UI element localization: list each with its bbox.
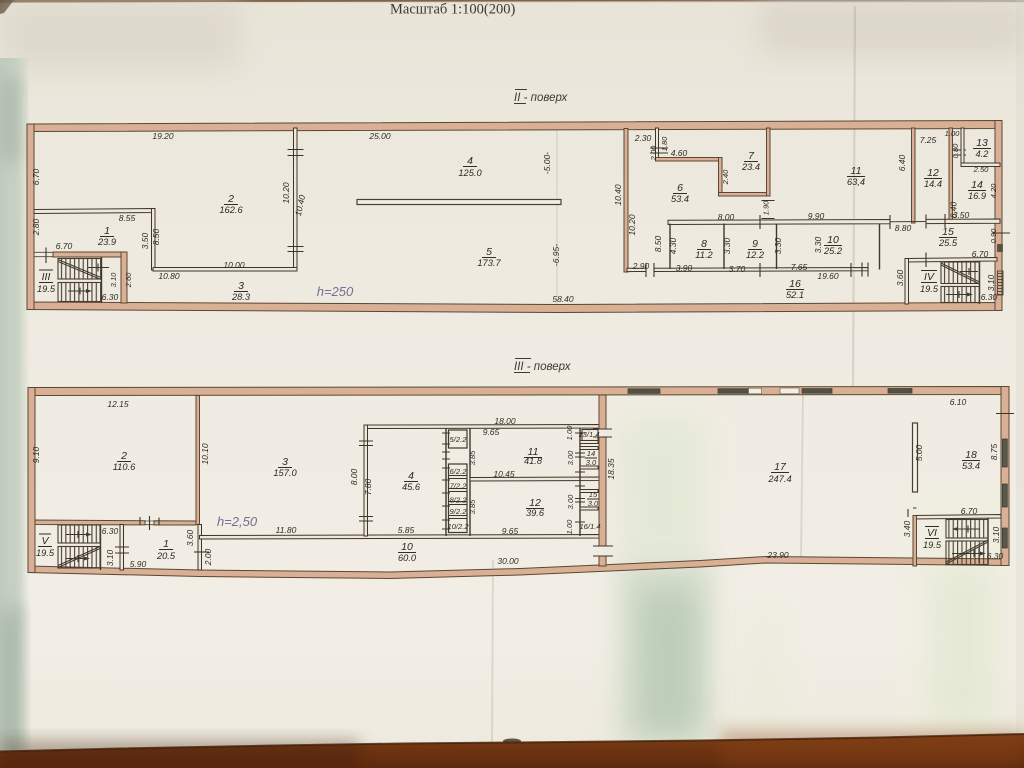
svg-text:2.30: 2.30 — [634, 133, 652, 143]
svg-text:6.70: 6.70 — [56, 241, 73, 251]
svg-text:10.20: 10.20 — [627, 214, 637, 236]
svg-text:8.00: 8.00 — [349, 468, 359, 485]
svg-text:9.65: 9.65 — [483, 427, 500, 437]
svg-text:2: 2 — [120, 450, 127, 462]
svg-text:1.80: 1.80 — [660, 136, 669, 152]
svg-text:3: 3 — [282, 456, 288, 468]
svg-text:23.9: 23.9 — [97, 237, 116, 247]
svg-text:11.2: 11.2 — [695, 250, 713, 260]
svg-text:23.90: 23.90 — [766, 550, 789, 560]
svg-text:1.00: 1.00 — [565, 425, 574, 441]
svg-text:8.00: 8.00 — [718, 212, 735, 222]
svg-text:8/2.2: 8/2.2 — [450, 496, 468, 505]
svg-text:30.00: 30.00 — [497, 556, 519, 566]
svg-text:12: 12 — [927, 167, 939, 179]
svg-text:10: 10 — [827, 234, 839, 246]
svg-text:10.80: 10.80 — [158, 271, 180, 281]
svg-text:6.70: 6.70 — [961, 506, 978, 516]
svg-text:10.45: 10.45 — [493, 469, 515, 479]
svg-text:h=2,50: h=2,50 — [217, 514, 258, 529]
svg-text:-5.00-: -5.00- — [542, 152, 552, 174]
svg-text:16: 16 — [789, 278, 801, 290]
svg-text:19.20: 19.20 — [152, 131, 174, 141]
svg-text:II - поверх: II - поверх — [514, 92, 568, 104]
svg-text:5.90: 5.90 — [130, 559, 147, 569]
svg-text:45.6: 45.6 — [402, 482, 421, 492]
svg-text:39.6: 39.6 — [526, 508, 545, 518]
svg-text:25.00: 25.00 — [368, 131, 391, 141]
svg-text:IV: IV — [924, 271, 935, 283]
svg-text:3.30: 3.30 — [773, 237, 783, 254]
svg-text:13/1.4: 13/1.4 — [578, 430, 599, 439]
svg-text:6/2.2: 6/2.2 — [450, 467, 468, 476]
svg-text:0.90: 0.90 — [989, 228, 998, 244]
svg-text:7.65: 7.65 — [791, 262, 808, 272]
svg-text:28.3: 28.3 — [231, 292, 251, 302]
svg-text:20.5: 20.5 — [156, 551, 176, 561]
svg-text:7.25: 7.25 — [920, 135, 937, 145]
svg-text:58.40: 58.40 — [552, 294, 574, 304]
svg-text:8: 8 — [701, 238, 707, 250]
svg-text:17: 17 — [774, 461, 787, 473]
svg-text:8.50: 8.50 — [653, 235, 663, 252]
svg-text:6.30: 6.30 — [981, 292, 998, 302]
svg-text:2.50: 2.50 — [973, 165, 990, 174]
svg-text:8.75: 8.75 — [989, 443, 999, 460]
svg-text:3.10: 3.10 — [109, 272, 118, 288]
svg-text:3.10: 3.10 — [991, 526, 1001, 543]
svg-text:6.40: 6.40 — [897, 154, 907, 171]
svg-text:53.4: 53.4 — [962, 461, 980, 471]
svg-text:6.30: 6.30 — [102, 292, 119, 302]
svg-text:III: III — [42, 271, 51, 283]
svg-text:10.10: 10.10 — [200, 443, 210, 465]
svg-text:3.85: 3.85 — [468, 499, 477, 515]
svg-text:15: 15 — [942, 226, 954, 238]
svg-text:2.00: 2.00 — [203, 548, 213, 566]
svg-text:11: 11 — [851, 165, 862, 177]
svg-text:3.10: 3.10 — [105, 549, 115, 566]
svg-text:10/2.2: 10/2.2 — [447, 522, 469, 531]
svg-text:8.50: 8.50 — [151, 228, 161, 245]
svg-text:3.70: 3.70 — [729, 264, 746, 274]
svg-text:2.90: 2.90 — [632, 261, 650, 271]
svg-text:1.90: 1.90 — [762, 200, 771, 216]
svg-text:3: 3 — [238, 280, 244, 292]
svg-text:9.65: 9.65 — [502, 526, 519, 536]
svg-text:15: 15 — [589, 490, 598, 499]
svg-text:h=250: h=250 — [317, 284, 354, 299]
svg-text:3.40: 3.40 — [902, 520, 912, 537]
svg-text:19.60: 19.60 — [817, 271, 839, 281]
svg-text:12.2: 12.2 — [746, 250, 765, 260]
svg-text:6.70: 6.70 — [31, 168, 41, 185]
svg-text:125.0: 125.0 — [458, 168, 482, 178]
svg-text:5.00: 5.00 — [914, 444, 924, 461]
svg-text:6.40: 6.40 — [949, 201, 959, 218]
svg-text:16.9: 16.9 — [968, 191, 986, 201]
svg-text:53.4: 53.4 — [671, 194, 689, 204]
svg-text:247.4: 247.4 — [767, 474, 791, 484]
svg-text:10.00: 10.00 — [223, 260, 245, 270]
svg-text:3.85: 3.85 — [468, 450, 477, 466]
svg-text:1: 1 — [104, 225, 110, 237]
svg-text:5/2.2: 5/2.2 — [450, 435, 468, 444]
svg-text:10: 10 — [401, 541, 413, 553]
svg-text:14.4: 14.4 — [924, 179, 942, 189]
svg-text:19.5: 19.5 — [920, 284, 939, 294]
svg-text:Масштаб 1:100(200): Масштаб 1:100(200) — [390, 2, 515, 18]
svg-text:19.5: 19.5 — [923, 540, 942, 550]
svg-text:5: 5 — [486, 246, 492, 258]
svg-text:8.55: 8.55 — [119, 213, 136, 223]
svg-text:III - поверх: III - поверх — [514, 361, 572, 373]
svg-text:18.35: 18.35 — [606, 458, 616, 480]
svg-text:4.20: 4.20 — [989, 183, 998, 199]
svg-text:41.8: 41.8 — [524, 456, 543, 466]
svg-text:157.0: 157.0 — [273, 468, 297, 478]
svg-text:173.7: 173.7 — [477, 258, 501, 268]
svg-text:14: 14 — [971, 179, 983, 191]
svg-text:16/1.4: 16/1.4 — [579, 522, 600, 531]
svg-text:23.4: 23.4 — [741, 162, 760, 172]
svg-text:3.10: 3.10 — [986, 274, 996, 291]
svg-text:5.85: 5.85 — [398, 525, 415, 535]
svg-text:-6.95-: -6.95- — [551, 244, 561, 266]
svg-text:13: 13 — [976, 137, 988, 149]
svg-text:9: 9 — [752, 238, 758, 250]
svg-text:2.00: 2.00 — [649, 145, 658, 162]
svg-text:1: 1 — [163, 538, 169, 550]
svg-text:12.15: 12.15 — [107, 399, 129, 409]
svg-text:6.10: 6.10 — [950, 397, 967, 407]
svg-text:110.6: 110.6 — [113, 462, 136, 472]
svg-text:19.5: 19.5 — [36, 548, 55, 558]
svg-text:7.80: 7.80 — [363, 478, 373, 495]
svg-text:25.2: 25.2 — [823, 246, 843, 256]
svg-text:25.5: 25.5 — [938, 238, 958, 248]
svg-text:6.30: 6.30 — [987, 551, 1004, 561]
svg-text:14: 14 — [587, 449, 595, 458]
svg-text:0.80: 0.80 — [951, 143, 960, 159]
svg-text:3.30: 3.30 — [722, 237, 732, 254]
svg-text:11.80: 11.80 — [276, 525, 297, 535]
svg-text:3.90: 3.90 — [676, 263, 693, 273]
svg-text:3.00: 3.00 — [566, 450, 575, 466]
svg-text:6.70: 6.70 — [972, 249, 989, 259]
svg-text:4: 4 — [408, 470, 414, 482]
svg-text:VI: VI — [927, 527, 937, 539]
svg-text:1.00: 1.00 — [565, 519, 574, 535]
svg-text:19.5: 19.5 — [37, 284, 56, 294]
svg-text:9.90: 9.90 — [808, 211, 825, 221]
svg-text:52.1: 52.1 — [786, 290, 804, 300]
svg-text:18: 18 — [965, 449, 977, 461]
svg-text:V: V — [41, 535, 49, 547]
svg-text:3.0: 3.0 — [586, 458, 597, 467]
svg-text:60.0: 60.0 — [398, 553, 417, 563]
svg-text:9.10: 9.10 — [31, 446, 41, 463]
svg-text:10.20: 10.20 — [281, 182, 291, 204]
svg-text:2.80: 2.80 — [31, 218, 41, 236]
svg-text:3.30: 3.30 — [813, 236, 823, 253]
svg-text:2: 2 — [227, 193, 234, 205]
svg-text:8.80: 8.80 — [895, 223, 912, 233]
svg-text:63,4: 63,4 — [847, 177, 865, 187]
svg-text:6.30: 6.30 — [102, 526, 119, 536]
svg-text:162.6: 162.6 — [219, 205, 243, 215]
svg-text:2.40: 2.40 — [721, 169, 730, 186]
svg-text:3.50: 3.50 — [140, 232, 150, 249]
svg-text:3.0: 3.0 — [588, 499, 599, 508]
svg-text:4: 4 — [467, 155, 473, 167]
svg-text:6: 6 — [677, 182, 683, 194]
svg-text:2.60: 2.60 — [124, 272, 133, 289]
svg-text:3.00: 3.00 — [566, 494, 575, 510]
svg-text:3.60: 3.60 — [895, 269, 905, 286]
svg-text:4.2: 4.2 — [976, 149, 990, 159]
svg-text:9/2.2: 9/2.2 — [450, 507, 468, 516]
svg-text:4.60: 4.60 — [671, 148, 688, 158]
svg-text:4.30: 4.30 — [668, 237, 678, 254]
svg-text:10.40: 10.40 — [613, 184, 623, 206]
svg-text:1.00: 1.00 — [945, 129, 961, 138]
svg-text:18.00: 18.00 — [494, 416, 516, 426]
svg-text:3.60: 3.60 — [185, 529, 195, 546]
svg-text:7/2.2: 7/2.2 — [450, 482, 468, 491]
